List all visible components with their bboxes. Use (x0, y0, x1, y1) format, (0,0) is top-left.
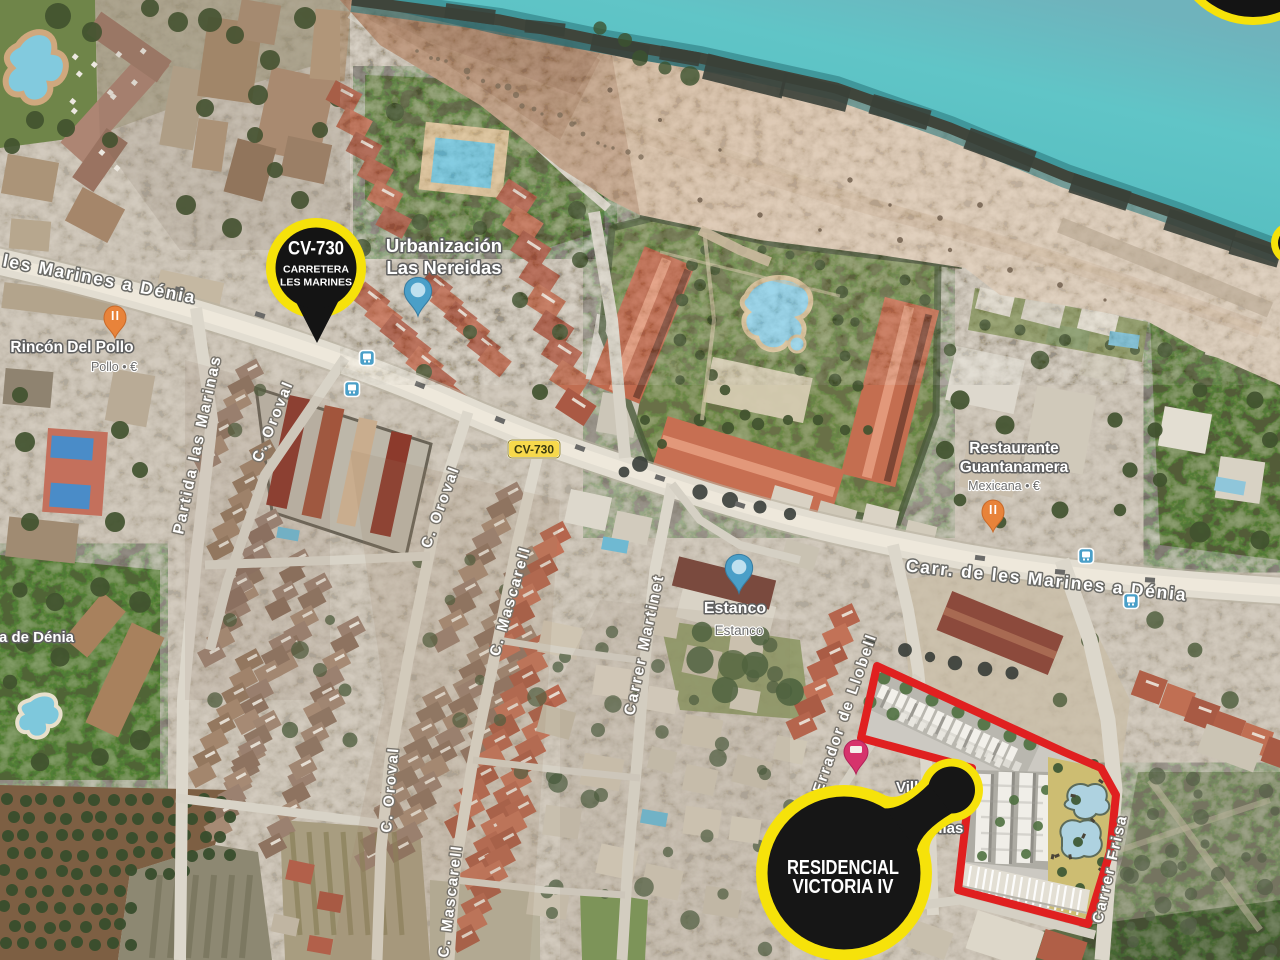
svg-text:ta de Dénia: ta de Dénia (0, 629, 75, 646)
svg-text:CV-730: CV-730 (514, 443, 554, 457)
svg-text:Urbanización: Urbanización (386, 235, 502, 256)
svg-text:Rincón Del Pollo: Rincón Del Pollo (10, 339, 133, 356)
svg-text:Guantanamera: Guantanamera (960, 459, 1069, 476)
svg-text:Estanco: Estanco (704, 600, 766, 617)
svg-text:LES MARINES: LES MARINES (280, 277, 352, 289)
svg-text:CV-730: CV-730 (288, 239, 344, 260)
svg-text:Mexicana • €: Mexicana • € (968, 479, 1040, 493)
svg-text:VICTORIA IV: VICTORIA IV (793, 876, 895, 898)
svg-text:Restaurante: Restaurante (969, 440, 1059, 457)
svg-text:Estanco: Estanco (715, 623, 764, 638)
svg-text:CARRETERA: CARRETERA (283, 264, 349, 276)
svg-text:Pollo • €: Pollo • € (91, 360, 137, 374)
svg-text:Las Nereidas: Las Nereidas (386, 257, 501, 278)
